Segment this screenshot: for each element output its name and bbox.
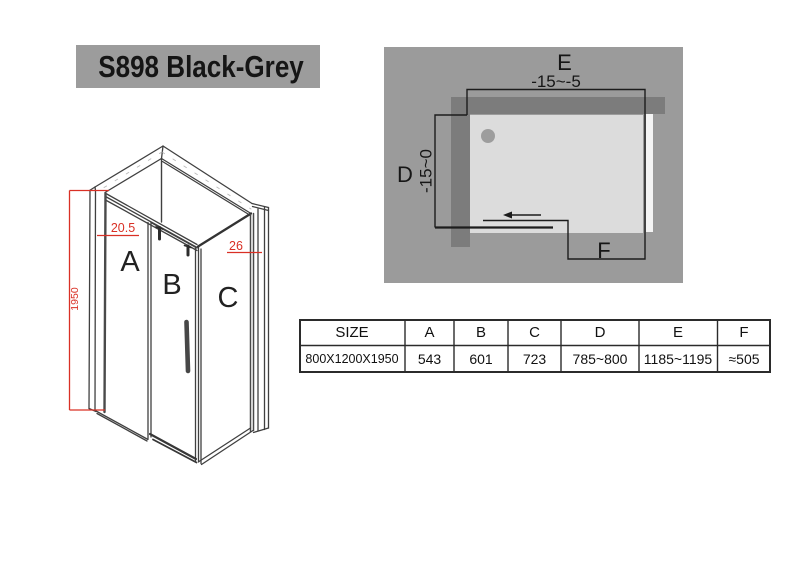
svg-text:-15~-5: -15~-5 (531, 72, 581, 91)
svg-text:D: D (397, 162, 413, 187)
svg-text:F: F (597, 238, 610, 263)
svg-text:-15~0: -15~0 (416, 149, 435, 193)
